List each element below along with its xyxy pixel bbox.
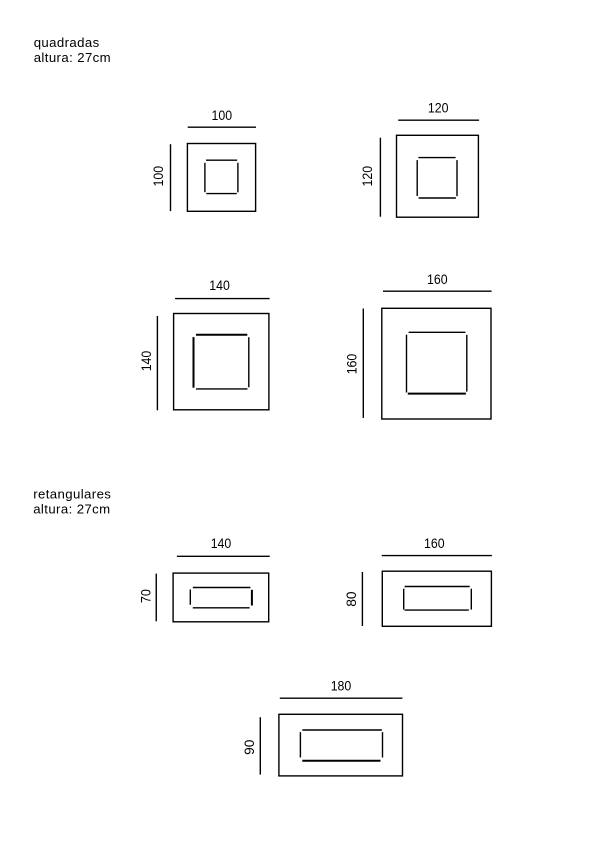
svg-text:160: 160 xyxy=(424,536,445,551)
svg-text:140: 140 xyxy=(211,536,232,551)
svg-text:100: 100 xyxy=(212,108,233,123)
svg-text:retangulares: retangulares xyxy=(33,487,111,502)
svg-text:altura: 27cm: altura: 27cm xyxy=(33,502,110,517)
svg-text:120: 120 xyxy=(428,101,449,116)
svg-text:70: 70 xyxy=(138,589,153,603)
svg-text:180: 180 xyxy=(331,678,352,693)
svg-text:100: 100 xyxy=(151,166,166,187)
svg-text:140: 140 xyxy=(139,351,154,372)
svg-text:160: 160 xyxy=(427,272,448,287)
svg-text:120: 120 xyxy=(360,166,375,187)
svg-text:80: 80 xyxy=(344,591,359,606)
svg-text:160: 160 xyxy=(345,354,360,375)
svg-text:90: 90 xyxy=(242,740,257,755)
svg-text:140: 140 xyxy=(209,278,230,293)
svg-text:quadradas: quadradas xyxy=(34,35,100,50)
svg-text:altura: 27cm: altura: 27cm xyxy=(34,50,111,65)
